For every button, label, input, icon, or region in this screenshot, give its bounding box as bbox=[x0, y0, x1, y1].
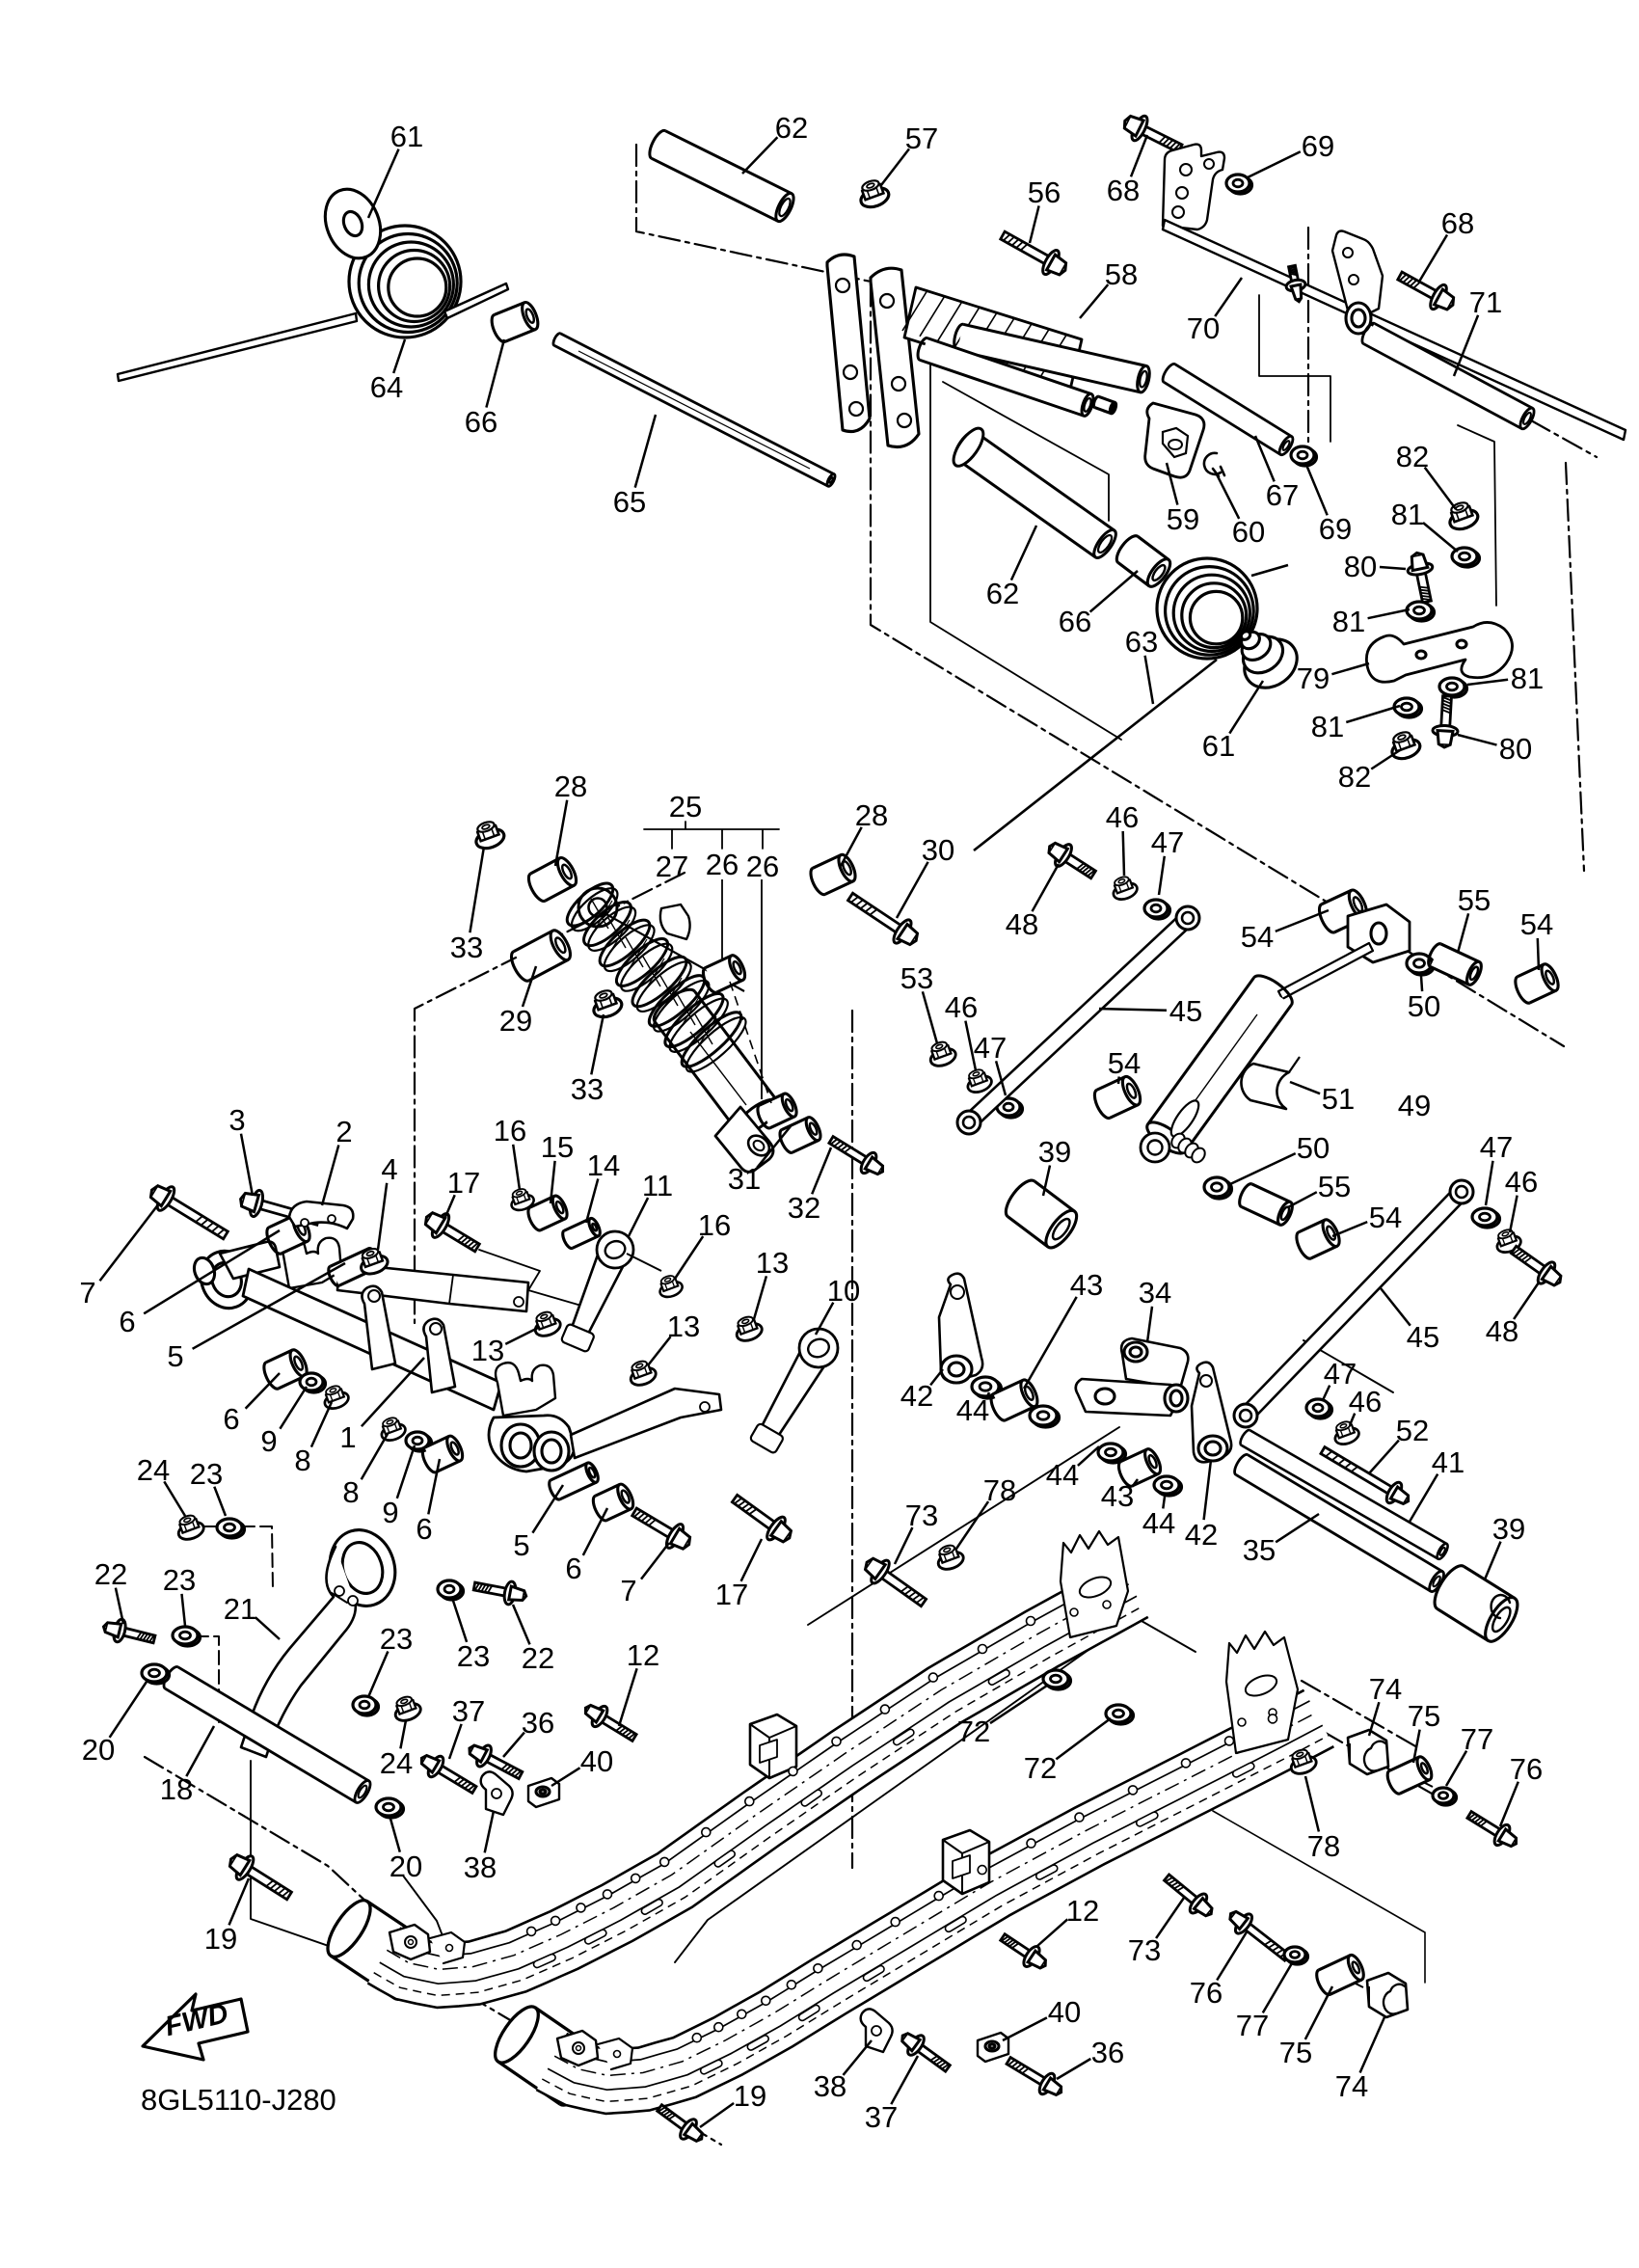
svg-text:22: 22 bbox=[94, 1557, 127, 1591]
svg-text:8: 8 bbox=[294, 1444, 310, 1477]
svg-text:26: 26 bbox=[706, 848, 739, 881]
svg-text:15: 15 bbox=[541, 1130, 574, 1164]
svg-text:12: 12 bbox=[627, 1638, 659, 1672]
svg-text:13: 13 bbox=[667, 1309, 700, 1343]
svg-text:20: 20 bbox=[390, 1849, 422, 1883]
svg-text:33: 33 bbox=[571, 1072, 604, 1106]
svg-text:60: 60 bbox=[1232, 515, 1265, 549]
svg-text:44: 44 bbox=[1142, 1506, 1175, 1540]
svg-text:19: 19 bbox=[734, 2079, 766, 2113]
svg-text:50: 50 bbox=[1408, 989, 1440, 1023]
svg-text:47: 47 bbox=[974, 1031, 1007, 1065]
svg-text:26: 26 bbox=[746, 850, 779, 883]
svg-text:22: 22 bbox=[522, 1641, 554, 1675]
svg-text:31: 31 bbox=[728, 1162, 761, 1196]
svg-text:30: 30 bbox=[922, 833, 954, 867]
svg-text:75: 75 bbox=[1408, 1699, 1440, 1733]
svg-text:24: 24 bbox=[380, 1746, 413, 1780]
svg-text:72: 72 bbox=[1024, 1751, 1057, 1785]
svg-text:32: 32 bbox=[788, 1191, 820, 1225]
svg-text:55: 55 bbox=[1458, 883, 1491, 917]
svg-text:46: 46 bbox=[1106, 800, 1139, 834]
svg-text:53: 53 bbox=[900, 961, 933, 995]
svg-text:5: 5 bbox=[513, 1528, 529, 1562]
svg-text:19: 19 bbox=[204, 1922, 237, 1956]
svg-text:17: 17 bbox=[715, 1578, 748, 1611]
svg-text:81: 81 bbox=[1311, 710, 1344, 743]
svg-text:81: 81 bbox=[1391, 498, 1424, 531]
svg-text:42: 42 bbox=[1185, 1518, 1218, 1552]
svg-text:76: 76 bbox=[1190, 1976, 1223, 2010]
svg-text:28: 28 bbox=[554, 769, 587, 803]
svg-text:65: 65 bbox=[613, 485, 646, 519]
svg-text:34: 34 bbox=[1139, 1276, 1171, 1309]
svg-text:4: 4 bbox=[381, 1152, 397, 1186]
svg-text:42: 42 bbox=[900, 1379, 933, 1413]
svg-text:74: 74 bbox=[1369, 1672, 1402, 1706]
svg-text:69: 69 bbox=[1302, 129, 1334, 163]
svg-text:11: 11 bbox=[642, 1169, 673, 1202]
svg-text:74: 74 bbox=[1335, 2069, 1368, 2103]
svg-text:7: 7 bbox=[620, 1574, 636, 1607]
svg-text:68: 68 bbox=[1107, 174, 1140, 207]
svg-text:56: 56 bbox=[1028, 175, 1061, 209]
svg-text:14: 14 bbox=[587, 1148, 620, 1182]
svg-text:52: 52 bbox=[1396, 1414, 1429, 1447]
svg-text:77: 77 bbox=[1236, 2009, 1269, 2042]
svg-text:39: 39 bbox=[1038, 1135, 1071, 1169]
svg-text:61: 61 bbox=[390, 120, 423, 153]
svg-text:23: 23 bbox=[457, 1639, 490, 1673]
svg-text:58: 58 bbox=[1105, 257, 1138, 291]
svg-text:66: 66 bbox=[465, 405, 497, 439]
svg-text:17: 17 bbox=[447, 1166, 480, 1200]
svg-text:27: 27 bbox=[656, 850, 688, 883]
svg-text:48: 48 bbox=[1486, 1314, 1518, 1348]
svg-text:2: 2 bbox=[336, 1115, 352, 1148]
svg-text:81: 81 bbox=[1511, 661, 1544, 695]
svg-text:81: 81 bbox=[1332, 605, 1365, 638]
svg-text:46: 46 bbox=[945, 990, 978, 1024]
svg-text:16: 16 bbox=[494, 1114, 526, 1147]
svg-text:54: 54 bbox=[1520, 907, 1553, 941]
svg-text:78: 78 bbox=[1307, 1829, 1340, 1863]
svg-text:20: 20 bbox=[82, 1733, 115, 1767]
svg-text:80: 80 bbox=[1344, 550, 1377, 583]
svg-text:23: 23 bbox=[190, 1457, 223, 1491]
svg-text:13: 13 bbox=[756, 1246, 789, 1280]
svg-text:61: 61 bbox=[1202, 729, 1235, 763]
svg-text:46: 46 bbox=[1505, 1165, 1538, 1199]
svg-text:73: 73 bbox=[1128, 1933, 1161, 1967]
svg-text:38: 38 bbox=[814, 2069, 846, 2103]
svg-text:8GL5110-J280: 8GL5110-J280 bbox=[141, 2083, 336, 2117]
svg-text:64: 64 bbox=[370, 370, 403, 404]
svg-text:50: 50 bbox=[1297, 1131, 1330, 1165]
svg-text:79: 79 bbox=[1297, 661, 1330, 695]
svg-text:69: 69 bbox=[1319, 512, 1352, 546]
svg-text:45: 45 bbox=[1407, 1320, 1439, 1354]
svg-text:40: 40 bbox=[580, 1744, 613, 1778]
svg-text:67: 67 bbox=[1266, 478, 1299, 512]
svg-text:80: 80 bbox=[1499, 732, 1532, 766]
svg-text:1: 1 bbox=[339, 1420, 356, 1454]
svg-text:18: 18 bbox=[160, 1772, 193, 1806]
svg-text:8: 8 bbox=[342, 1475, 359, 1509]
svg-text:63: 63 bbox=[1125, 625, 1158, 659]
svg-text:76: 76 bbox=[1510, 1752, 1543, 1786]
svg-text:6: 6 bbox=[223, 1402, 239, 1436]
svg-text:23: 23 bbox=[380, 1622, 413, 1656]
svg-text:54: 54 bbox=[1369, 1201, 1402, 1234]
svg-text:36: 36 bbox=[1091, 2036, 1124, 2069]
svg-text:57: 57 bbox=[905, 121, 938, 155]
svg-text:37: 37 bbox=[452, 1694, 485, 1728]
svg-text:21: 21 bbox=[224, 1592, 256, 1626]
svg-text:47: 47 bbox=[1480, 1130, 1513, 1164]
svg-text:6: 6 bbox=[416, 1512, 432, 1546]
svg-text:38: 38 bbox=[464, 1850, 497, 1884]
svg-text:6: 6 bbox=[565, 1552, 581, 1585]
svg-text:72: 72 bbox=[957, 1714, 990, 1748]
svg-text:29: 29 bbox=[499, 1004, 532, 1038]
svg-text:35: 35 bbox=[1243, 1533, 1276, 1567]
svg-text:54: 54 bbox=[1108, 1046, 1141, 1080]
svg-text:59: 59 bbox=[1167, 502, 1199, 536]
svg-text:25: 25 bbox=[669, 790, 702, 823]
svg-text:44: 44 bbox=[1046, 1458, 1079, 1492]
svg-text:28: 28 bbox=[855, 798, 888, 832]
svg-text:5: 5 bbox=[167, 1339, 183, 1373]
svg-text:70: 70 bbox=[1187, 311, 1220, 345]
svg-text:9: 9 bbox=[260, 1424, 277, 1458]
svg-text:33: 33 bbox=[450, 931, 483, 964]
svg-text:73: 73 bbox=[905, 1498, 938, 1532]
svg-text:43: 43 bbox=[1070, 1268, 1103, 1302]
svg-text:9: 9 bbox=[382, 1496, 398, 1529]
svg-text:23: 23 bbox=[163, 1563, 196, 1597]
svg-text:55: 55 bbox=[1318, 1170, 1351, 1203]
svg-text:39: 39 bbox=[1492, 1512, 1525, 1546]
svg-text:40: 40 bbox=[1048, 1995, 1081, 2029]
svg-text:43: 43 bbox=[1101, 1479, 1134, 1513]
svg-text:51: 51 bbox=[1322, 1082, 1355, 1116]
svg-text:36: 36 bbox=[522, 1706, 554, 1740]
svg-text:13: 13 bbox=[471, 1334, 504, 1367]
svg-text:54: 54 bbox=[1241, 920, 1274, 954]
svg-text:66: 66 bbox=[1059, 605, 1091, 638]
svg-text:82: 82 bbox=[1338, 760, 1371, 794]
svg-text:71: 71 bbox=[1469, 285, 1502, 319]
svg-text:44: 44 bbox=[956, 1393, 989, 1427]
svg-text:47: 47 bbox=[1151, 825, 1184, 859]
svg-text:75: 75 bbox=[1279, 2036, 1312, 2069]
svg-text:6: 6 bbox=[119, 1305, 135, 1338]
svg-text:12: 12 bbox=[1066, 1894, 1099, 1928]
svg-text:62: 62 bbox=[775, 111, 808, 145]
svg-text:3: 3 bbox=[228, 1103, 245, 1137]
svg-text:62: 62 bbox=[986, 577, 1019, 610]
svg-text:45: 45 bbox=[1169, 994, 1202, 1028]
svg-text:37: 37 bbox=[865, 2100, 898, 2134]
svg-text:48: 48 bbox=[1006, 907, 1038, 941]
svg-text:49: 49 bbox=[1398, 1089, 1431, 1122]
svg-text:7: 7 bbox=[79, 1276, 95, 1309]
